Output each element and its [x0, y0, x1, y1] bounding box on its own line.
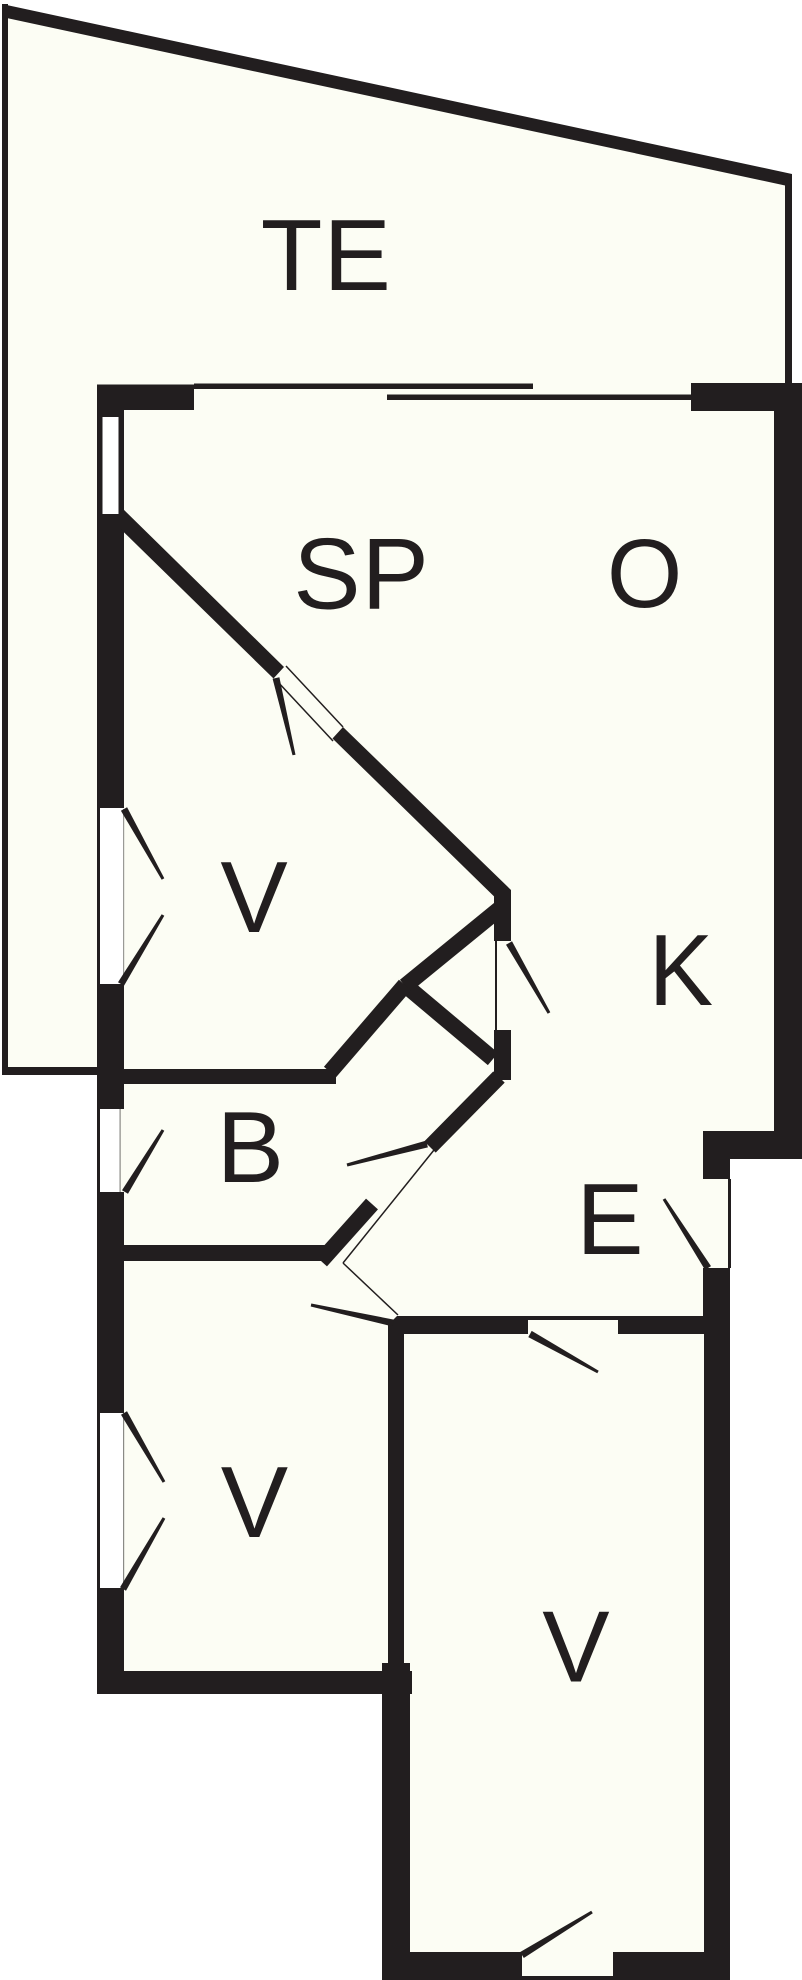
svg-text:O: O: [607, 519, 682, 628]
svg-text:E: E: [576, 1164, 643, 1276]
svg-text:V: V: [542, 1592, 609, 1704]
svg-text:TE: TE: [261, 200, 392, 312]
svg-text:B: B: [217, 1092, 284, 1204]
svg-text:K: K: [649, 915, 714, 1027]
svg-text:V: V: [221, 1447, 288, 1559]
svg-text:V: V: [220, 842, 287, 954]
svg-text:SP: SP: [293, 518, 430, 630]
